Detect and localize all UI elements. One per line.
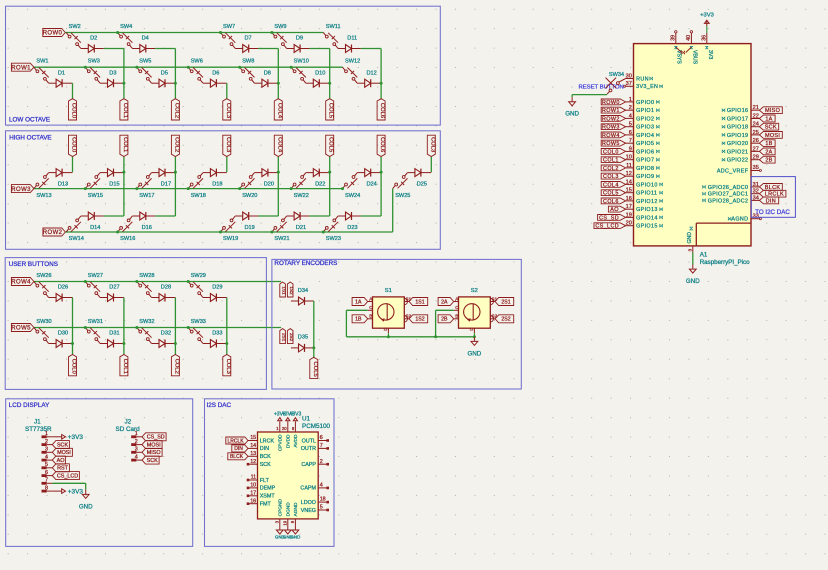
svg-text:D30: D30 [58, 331, 68, 337]
svg-text:GPIO2: GPIO2 [636, 116, 654, 122]
svg-text:D11: D11 [347, 36, 357, 42]
svg-text:6: 6 [45, 470, 48, 476]
svg-text:SW20: SW20 [242, 193, 257, 199]
svg-text:GPIO12: GPIO12 [636, 199, 658, 205]
svg-text:D16: D16 [142, 225, 152, 231]
svg-text:1S2: 1S2 [289, 286, 294, 295]
svg-text:+3V3: +3V3 [289, 412, 301, 418]
svg-text:D29: D29 [212, 285, 222, 291]
svg-text:LRCK: LRCK [260, 438, 275, 444]
svg-text:S2: S2 [492, 314, 498, 319]
svg-text:SW33: SW33 [191, 319, 206, 325]
svg-text:D35: D35 [298, 335, 308, 341]
svg-text:COL2: COL2 [173, 103, 179, 118]
svg-text:D20: D20 [264, 182, 274, 188]
svg-text:GPIO20: GPIO20 [727, 141, 749, 147]
svg-text:BCK: BCK [260, 454, 271, 460]
svg-text:J1: J1 [34, 419, 41, 426]
svg-text:8: 8 [45, 485, 48, 491]
svg-text:18: 18 [320, 497, 326, 503]
svg-text:SW14: SW14 [69, 236, 84, 242]
svg-text:20: 20 [282, 426, 287, 431]
svg-text:TO I2C DAC: TO I2C DAC [755, 209, 790, 216]
svg-text:D7: D7 [245, 36, 252, 42]
svg-text:GND: GND [468, 350, 482, 357]
svg-text:SCK: SCK [147, 458, 158, 464]
svg-text:GND: GND [291, 535, 301, 540]
svg-text:ROW0: ROW0 [43, 31, 63, 37]
svg-text:24: 24 [753, 122, 759, 128]
svg-text:ADC_VREF: ADC_VREF [717, 168, 749, 174]
svg-text:COL3: COL3 [225, 103, 231, 118]
svg-text:SW15: SW15 [88, 193, 103, 199]
svg-text:I2S DAC: I2S DAC [207, 402, 232, 409]
svg-text:6: 6 [629, 130, 632, 136]
svg-text:COL2: COL2 [603, 166, 619, 172]
svg-text:17: 17 [250, 490, 256, 496]
svg-text:1S1: 1S1 [282, 286, 287, 295]
svg-text:FMT: FMT [260, 502, 272, 508]
svg-text:D17: D17 [161, 182, 171, 188]
svg-text:XSMT: XSMT [260, 494, 276, 500]
svg-text:5: 5 [320, 505, 323, 511]
svg-text:COL0: COL0 [71, 103, 77, 118]
svg-text:GPIO6: GPIO6 [636, 149, 654, 155]
svg-text:AO: AO [610, 207, 619, 213]
svg-text:2: 2 [45, 439, 48, 445]
svg-text:GPIO15: GPIO15 [636, 224, 658, 230]
svg-text:GND: GND [79, 503, 93, 510]
svg-text:S1: S1 [406, 296, 412, 301]
svg-text:SW22: SW22 [294, 193, 309, 199]
svg-text:D14: D14 [90, 225, 100, 231]
svg-text:COL0: COL0 [71, 359, 77, 374]
svg-text:GPIO4: GPIO4 [636, 133, 654, 139]
svg-text:5: 5 [629, 122, 632, 128]
svg-text:LCD DISPLAY: LCD DISPLAY [9, 402, 50, 409]
svg-text:SW30: SW30 [36, 319, 51, 325]
svg-text:RUN: RUN [636, 76, 649, 82]
svg-text:GPIO16: GPIO16 [727, 108, 749, 114]
svg-text:36: 36 [702, 35, 708, 41]
svg-text:COL4: COL4 [276, 137, 282, 153]
svg-text:CS_SD: CS_SD [147, 435, 165, 441]
svg-text:COL5: COL5 [312, 362, 318, 377]
svg-text:GPIO11: GPIO11 [636, 191, 657, 197]
svg-text:10: 10 [250, 483, 256, 489]
svg-text:SW16: SW16 [120, 236, 135, 242]
svg-text:MOSI: MOSI [147, 443, 161, 449]
svg-text:4: 4 [45, 454, 48, 460]
svg-text:6: 6 [320, 435, 323, 441]
svg-text:COL2: COL2 [173, 359, 179, 374]
svg-text:ROW3: ROW3 [11, 187, 31, 193]
svg-text:GPIO1: GPIO1 [636, 108, 654, 114]
svg-text:15: 15 [626, 188, 632, 194]
svg-text:GPIO3: GPIO3 [636, 125, 654, 131]
svg-text:SW28: SW28 [139, 273, 154, 279]
svg-text:B: B [455, 314, 458, 319]
svg-text:D28: D28 [161, 285, 171, 291]
svg-text:S1: S1 [385, 288, 392, 294]
svg-text:+3V3: +3V3 [68, 488, 84, 495]
svg-text:16: 16 [626, 196, 632, 202]
svg-text:D3: D3 [109, 70, 116, 76]
svg-text:MOSI: MOSI [57, 450, 71, 456]
svg-text:D13: D13 [58, 182, 68, 188]
svg-text:SW21: SW21 [274, 236, 289, 242]
svg-text:D24: D24 [367, 182, 377, 188]
svg-text:1A: 1A [355, 299, 362, 305]
svg-text:GPIO9: GPIO9 [636, 174, 654, 180]
svg-text:10: 10 [626, 155, 632, 161]
svg-text:AGND: AGND [731, 217, 748, 223]
svg-text:SW31: SW31 [88, 319, 103, 325]
svg-text:SW5: SW5 [139, 59, 151, 65]
svg-text:COL1: COL1 [122, 103, 128, 118]
svg-text:SW18: SW18 [191, 193, 206, 199]
svg-text:GPIO17: GPIO17 [727, 116, 749, 122]
svg-text:SW10: SW10 [294, 59, 309, 65]
svg-text:GND: GND [687, 232, 693, 244]
svg-text:SCK: SCK [57, 443, 68, 449]
svg-text:3V3: 3V3 [707, 50, 713, 59]
svg-text:2A: 2A [441, 299, 448, 305]
svg-text:J2: J2 [125, 419, 132, 426]
svg-text:D12: D12 [367, 70, 377, 76]
svg-text:27: 27 [753, 146, 759, 152]
svg-text:SW26: SW26 [36, 273, 51, 279]
svg-text:DEMP: DEMP [260, 486, 276, 492]
svg-text:16: 16 [250, 498, 256, 504]
svg-text:COL0: COL0 [71, 137, 77, 152]
svg-text:AO: AO [57, 458, 65, 464]
svg-text:COL3: COL3 [225, 137, 231, 152]
svg-text:39: 39 [671, 35, 677, 41]
svg-text:B: B [369, 314, 372, 319]
svg-text:25: 25 [753, 130, 759, 136]
svg-text:SW11: SW11 [326, 24, 341, 30]
svg-text:SW8: SW8 [242, 59, 254, 65]
svg-text:ROTARY ENCODERS: ROTARY ENCODERS [274, 260, 337, 267]
svg-text:SW27: SW27 [88, 273, 103, 279]
svg-text:GPIO19: GPIO19 [727, 133, 749, 139]
svg-text:2B: 2B [441, 317, 448, 323]
svg-text:CPGND: CPGND [278, 499, 284, 517]
svg-text:SW1: SW1 [36, 59, 48, 65]
svg-text:SW25: SW25 [395, 193, 410, 199]
svg-text:D32: D32 [161, 331, 171, 337]
svg-text:7: 7 [45, 478, 48, 484]
svg-text:D22: D22 [315, 182, 325, 188]
svg-text:14: 14 [250, 443, 256, 449]
svg-text:RESET BUTTON: RESET BUTTON [579, 85, 624, 91]
svg-text:CS_LCD: CS_LCD [595, 224, 619, 230]
svg-text:1: 1 [45, 431, 48, 437]
svg-text:3V3_EN: 3V3_EN [636, 84, 658, 90]
svg-text:SW29: SW29 [191, 273, 206, 279]
svg-text:ROW2: ROW2 [43, 230, 63, 236]
svg-text:OUTL: OUTL [302, 438, 316, 444]
svg-text:USER BUTTONS: USER BUTTONS [9, 261, 58, 268]
svg-text:14: 14 [626, 179, 632, 185]
svg-text:22: 22 [753, 113, 759, 119]
svg-text:AGND: AGND [293, 502, 299, 516]
svg-text:D26: D26 [58, 285, 68, 291]
svg-text:3: 3 [687, 249, 693, 252]
svg-text:D23: D23 [347, 225, 357, 231]
svg-text:GPIO21: GPIO21 [727, 149, 749, 155]
svg-text:DIN: DIN [766, 198, 776, 204]
svg-text:SW9: SW9 [274, 24, 286, 30]
svg-text:SW2: SW2 [69, 24, 81, 30]
svg-text:D25: D25 [417, 182, 427, 188]
svg-text:1B: 1B [765, 141, 772, 147]
svg-text:2S1: 2S1 [501, 299, 510, 305]
svg-text:1B: 1B [355, 317, 362, 323]
svg-text:SW19: SW19 [223, 236, 238, 242]
svg-text:LRCLK: LRCLK [227, 438, 244, 444]
svg-text:1S2: 1S2 [415, 317, 424, 323]
svg-text:37: 37 [626, 81, 632, 87]
svg-text:3: 3 [45, 447, 48, 453]
svg-text:ROW4: ROW4 [11, 280, 31, 286]
svg-text:MISO: MISO [147, 450, 161, 456]
svg-text:D6: D6 [212, 70, 219, 76]
svg-text:DGND: DGND [286, 502, 292, 517]
svg-text:12: 12 [250, 459, 256, 465]
svg-text:32: 32 [753, 189, 759, 195]
svg-text:19: 19 [626, 212, 632, 218]
svg-text:11: 11 [626, 163, 632, 169]
svg-text:4: 4 [135, 454, 138, 460]
svg-text:GPIO7: GPIO7 [636, 158, 654, 164]
svg-text:PCM5100: PCM5100 [302, 423, 330, 430]
svg-text:2S2: 2S2 [501, 317, 510, 323]
svg-text:SW6: SW6 [191, 59, 203, 65]
svg-text:+3V3: +3V3 [700, 13, 714, 19]
svg-text:COL2: COL2 [173, 137, 179, 152]
svg-text:COL4: COL4 [603, 182, 619, 188]
svg-text:OUTR: OUTR [301, 446, 316, 452]
svg-text:35: 35 [753, 165, 759, 171]
svg-text:DVDD: DVDD [286, 434, 292, 448]
svg-text:SW13: SW13 [36, 193, 51, 199]
svg-text:D2: D2 [90, 36, 97, 42]
svg-text:D18: D18 [212, 182, 222, 188]
svg-text:A1: A1 [700, 251, 708, 258]
svg-text:CPVDD: CPVDD [278, 434, 284, 451]
svg-text:AVDD: AVDD [293, 434, 299, 448]
svg-text:VBUS: VBUS [691, 50, 697, 65]
svg-text:D21: D21 [296, 225, 306, 231]
svg-text:9: 9 [629, 146, 632, 152]
svg-text:SW23: SW23 [326, 236, 341, 242]
svg-text:GPIO0: GPIO0 [636, 100, 654, 106]
svg-text:CAPP: CAPP [301, 462, 316, 468]
svg-text:COL5: COL5 [603, 191, 619, 197]
svg-text:20: 20 [626, 221, 632, 227]
svg-text:5: 5 [45, 462, 48, 468]
svg-text:SW32: SW32 [139, 319, 154, 325]
svg-text:2S2: 2S2 [289, 333, 294, 342]
svg-text:SCK: SCK [260, 462, 271, 468]
svg-text:3: 3 [135, 447, 138, 453]
svg-text:15: 15 [250, 435, 256, 441]
svg-text:D10: D10 [315, 70, 325, 76]
svg-text:GND: GND [686, 278, 700, 285]
svg-text:11: 11 [251, 475, 257, 481]
svg-text:GPIO10: GPIO10 [636, 182, 658, 188]
svg-text:2: 2 [320, 459, 323, 465]
svg-text:COL5: COL5 [328, 137, 334, 152]
svg-text:SCK: SCK [765, 125, 777, 131]
svg-text:MOSI: MOSI [765, 133, 780, 139]
svg-text:SW7: SW7 [223, 24, 235, 30]
svg-text:HIGH OCTAVE: HIGH OCTAVE [9, 134, 51, 141]
svg-text:4: 4 [320, 483, 323, 489]
svg-text:2: 2 [629, 105, 632, 111]
svg-text:D27: D27 [109, 285, 119, 291]
svg-text:S2: S2 [406, 314, 412, 319]
svg-text:13: 13 [250, 451, 256, 457]
svg-text:COL6: COL6 [379, 103, 385, 118]
svg-text:SW3: SW3 [88, 59, 100, 65]
svg-text:MISO: MISO [765, 108, 781, 114]
svg-text:1S1: 1S1 [415, 299, 424, 305]
svg-text:S1: S1 [492, 296, 498, 301]
svg-text:D34: D34 [298, 288, 308, 294]
svg-text:1: 1 [629, 97, 632, 103]
svg-text:COL1: COL1 [122, 359, 128, 374]
svg-text:COL5: COL5 [328, 103, 334, 118]
svg-text:COL1: COL1 [122, 137, 128, 152]
svg-text:29: 29 [753, 155, 759, 161]
svg-text:1: 1 [135, 431, 138, 437]
svg-text:40: 40 [686, 35, 692, 41]
svg-text:SW4: SW4 [120, 24, 132, 30]
svg-text:COL0: COL0 [603, 149, 619, 155]
svg-text:GPIO26_ADC0: GPIO26_ADC0 [708, 185, 749, 191]
svg-text:GND: GND [565, 111, 579, 118]
svg-text:SW17: SW17 [139, 193, 154, 199]
svg-text:7: 7 [320, 443, 323, 449]
svg-text:2B: 2B [765, 158, 772, 164]
svg-text:19: 19 [283, 520, 288, 525]
svg-text:RaspberryPI_Pico: RaspberryPI_Pico [700, 259, 750, 266]
svg-text:GPIO27_ADC1: GPIO27_ADC1 [708, 192, 749, 198]
svg-text:COL3: COL3 [603, 174, 619, 180]
svg-text:S2: S2 [471, 288, 478, 294]
svg-text:D9: D9 [296, 36, 303, 42]
svg-text:U1: U1 [302, 416, 311, 423]
svg-text:RST: RST [57, 466, 68, 472]
svg-text:4: 4 [629, 113, 632, 119]
svg-text:ROW5: ROW5 [11, 326, 31, 332]
svg-text:17: 17 [626, 204, 632, 210]
svg-text:ROW1: ROW1 [602, 108, 620, 114]
svg-text:D1: D1 [58, 70, 65, 76]
svg-text:CS_SD: CS_SD [599, 215, 619, 221]
svg-text:ROW4: ROW4 [602, 133, 620, 139]
svg-text:ROW2: ROW2 [602, 116, 620, 122]
svg-text:GPIO28_ADC2: GPIO28_ADC2 [708, 198, 749, 204]
svg-text:CS_LCD: CS_LCD [57, 474, 78, 480]
svg-text:CAPM: CAPM [300, 486, 316, 492]
svg-text:DIN: DIN [260, 446, 269, 452]
svg-text:GPIO22: GPIO22 [727, 158, 749, 164]
svg-text:ROW5: ROW5 [602, 141, 620, 147]
svg-text:+3V3: +3V3 [68, 434, 84, 441]
svg-text:SW24: SW24 [345, 193, 360, 199]
svg-text:D15: D15 [109, 182, 119, 188]
svg-text:D4: D4 [142, 36, 149, 42]
svg-text:21: 21 [753, 105, 759, 111]
svg-text:FLT: FLT [260, 478, 270, 484]
svg-text:34: 34 [753, 195, 759, 201]
svg-text:SW12: SW12 [345, 59, 360, 65]
svg-text:GPIO5: GPIO5 [636, 141, 654, 147]
svg-text:GPIO14: GPIO14 [636, 215, 658, 221]
svg-text:2A: 2A [765, 149, 772, 155]
svg-text:D31: D31 [109, 331, 119, 337]
svg-text:D8: D8 [264, 70, 271, 76]
svg-text:VNEG: VNEG [301, 508, 316, 514]
svg-text:7: 7 [629, 138, 632, 144]
svg-text:LDOO: LDOO [301, 500, 316, 506]
svg-text:COL3: COL3 [429, 137, 435, 152]
svg-text:30: 30 [626, 73, 632, 79]
svg-text:COL4: COL4 [276, 103, 282, 119]
svg-text:ROW0: ROW0 [602, 100, 620, 106]
svg-text:DIN: DIN [234, 446, 243, 452]
svg-text:ROW3: ROW3 [602, 125, 620, 131]
svg-text:SW34: SW34 [609, 72, 624, 78]
svg-text:ROW1: ROW1 [11, 65, 31, 71]
svg-text:2S1: 2S1 [282, 333, 287, 342]
svg-text:D19: D19 [245, 225, 255, 231]
svg-text:1A: 1A [765, 116, 772, 122]
svg-text:GPIO8: GPIO8 [636, 166, 654, 172]
svg-text:D33: D33 [212, 331, 222, 337]
svg-text:2: 2 [135, 439, 138, 445]
svg-text:GPIO18: GPIO18 [727, 125, 749, 131]
svg-text:GPIO13: GPIO13 [636, 207, 658, 213]
svg-text:31: 31 [753, 182, 759, 188]
svg-text:COL1: COL1 [603, 158, 619, 164]
svg-text:12: 12 [626, 171, 632, 177]
svg-text:COL6: COL6 [603, 199, 619, 205]
svg-text:D5: D5 [161, 70, 168, 76]
svg-text:LOW OCTAVE: LOW OCTAVE [9, 117, 50, 124]
svg-text:COL3: COL3 [225, 359, 231, 374]
svg-text:26: 26 [753, 138, 759, 144]
svg-text:COL6: COL6 [379, 137, 385, 152]
svg-text:BLCK: BLCK [230, 454, 244, 460]
